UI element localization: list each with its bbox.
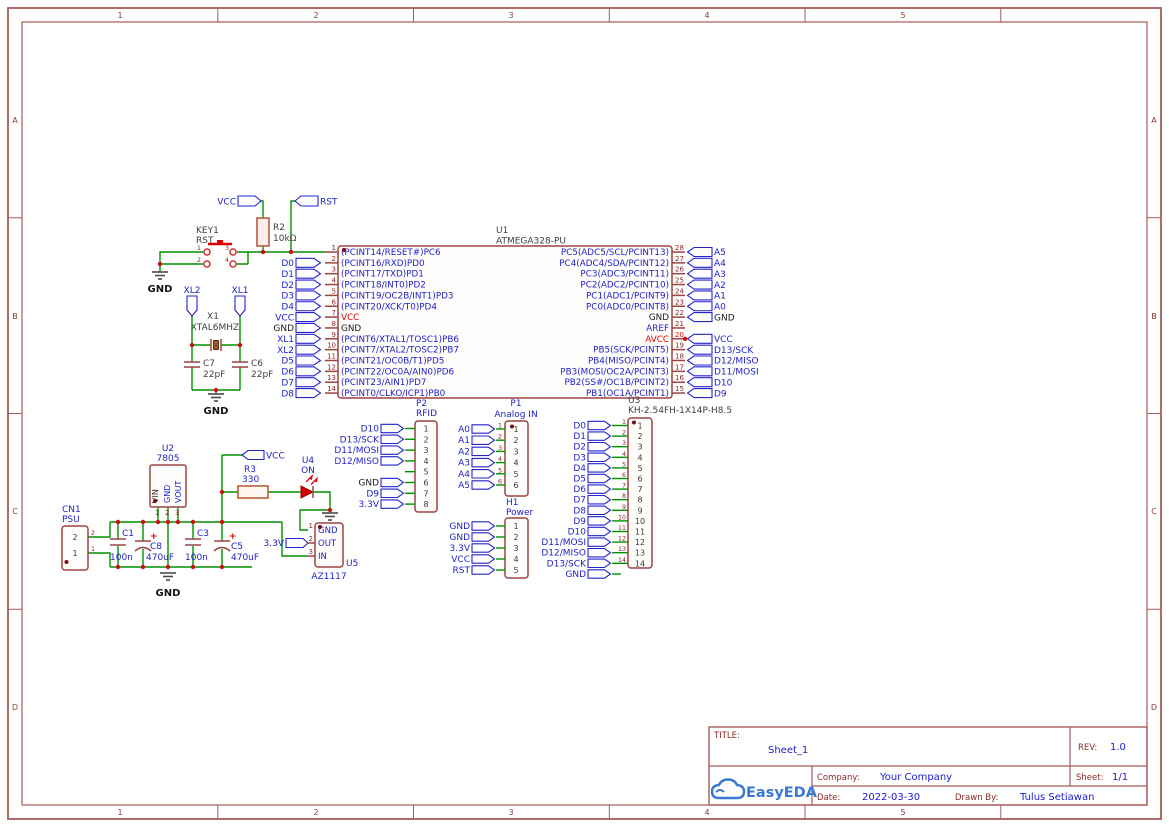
- pin-number: 2: [332, 255, 336, 263]
- net-flag[interactable]: D12/MISO: [541, 549, 610, 559]
- pin-number: 1: [155, 509, 159, 517]
- net-label: A0: [714, 302, 726, 312]
- net-flag[interactable]: RST: [453, 566, 495, 576]
- frame-col-label: 1: [117, 808, 122, 817]
- pin-number: 4: [332, 277, 337, 285]
- net-label: RST: [453, 566, 471, 576]
- pin-name: PC5(ADC5/SCL/PCINT13): [561, 248, 669, 258]
- pin-number: 3: [498, 445, 502, 452]
- pin-name: VCC: [341, 313, 359, 323]
- net-label: VCC: [451, 555, 470, 565]
- net-label: VCC: [714, 335, 733, 345]
- pin-name: (PCINT23/AIN1)PD7: [341, 378, 426, 388]
- net-flag[interactable]: D1: [281, 269, 320, 280]
- pin-number: 2: [197, 257, 201, 264]
- net-label: D6: [573, 485, 586, 495]
- value: 10kΩ: [273, 234, 297, 244]
- value: 470uF: [231, 553, 259, 563]
- crystal-body: [214, 341, 219, 350]
- pin-number: 19: [675, 342, 684, 350]
- company-value[interactable]: Your Company: [879, 772, 952, 783]
- component-u1[interactable]: U1 ATMEGA328-PU 1 (PCINT14/RESET#)PC6 2 …: [273, 226, 758, 399]
- pin-name: PB5(SCK/PCINT5): [593, 346, 669, 356]
- net-label: D12/MISO: [334, 457, 379, 467]
- pin-number: 20: [675, 331, 684, 339]
- net-label: D5: [281, 357, 294, 367]
- pin-number: 2: [91, 530, 95, 537]
- pin-name: (PCINT20/XCK/T0)PD4: [341, 302, 437, 312]
- refdes: C3: [197, 529, 209, 539]
- net-flag[interactable]: D11/MOSI: [334, 446, 403, 456]
- net-label: RST: [320, 198, 338, 208]
- pin-name: 2: [513, 436, 518, 445]
- net-label: A4: [714, 259, 726, 269]
- value: 22pF: [251, 370, 273, 380]
- net-flag-xl1[interactable]: XL1: [232, 286, 249, 316]
- value: Power: [506, 508, 534, 518]
- pin-number: 15: [675, 385, 684, 393]
- pin1-indicator: [153, 499, 157, 503]
- net-label: D7: [281, 378, 294, 388]
- pin-name: OUT: [318, 539, 337, 549]
- pin-number: 18: [675, 353, 684, 361]
- gnd-label: GND: [148, 284, 173, 295]
- net-flag[interactable]: D11/MOSI: [541, 538, 610, 548]
- led-triangle: [301, 486, 313, 498]
- net-label: D13/SCK: [547, 559, 587, 569]
- title-block: TITLE: Sheet_1 REV: 1.0 EasyEDA Company:…: [709, 727, 1147, 805]
- value: Analog IN: [494, 410, 537, 420]
- net-label: D10: [568, 528, 587, 538]
- refdes: CN1: [62, 505, 81, 515]
- net-label: D1: [281, 270, 294, 280]
- net-label: VCC: [217, 198, 236, 208]
- pin-name: 14: [635, 559, 645, 568]
- pin-name: AVCC: [645, 335, 669, 345]
- pin-name: 1: [637, 422, 642, 431]
- net-flag[interactable]: A1: [688, 291, 726, 302]
- net-flag[interactable]: XL1: [277, 334, 320, 345]
- frame-col-label: 1: [117, 11, 122, 20]
- led-rays: [306, 476, 317, 485]
- pin-number: 13: [327, 374, 336, 382]
- net-flag[interactable]: XL2: [277, 345, 320, 356]
- pin-number: 7: [622, 483, 626, 490]
- net-label: D9: [714, 389, 727, 399]
- frame-col-label: 3: [508, 808, 513, 817]
- date-value[interactable]: 2022-03-30: [862, 792, 920, 803]
- frame-col-label: 4: [704, 808, 709, 817]
- pin-name: 8: [423, 500, 428, 509]
- net-flag[interactable]: A1: [458, 436, 494, 446]
- pin-number: 22: [675, 309, 684, 317]
- pin-number: 9: [622, 504, 626, 511]
- pin1-indicator: [342, 248, 346, 252]
- frame-row-label: A: [12, 116, 18, 125]
- pin-number: 3: [309, 548, 313, 556]
- pin-number: 1: [197, 245, 201, 252]
- net-flag[interactable]: A3: [458, 458, 494, 468]
- frame-row-label: D: [12, 703, 18, 712]
- net-flag[interactable]: D10: [361, 424, 404, 434]
- net-flag[interactable]: D7: [573, 496, 610, 506]
- net-flag[interactable]: A0: [458, 425, 494, 435]
- net-flag[interactable]: D3: [573, 453, 610, 463]
- pin-name: 6: [423, 479, 428, 488]
- net-label: D7: [573, 496, 586, 506]
- net-flag[interactable]: D10: [568, 527, 611, 537]
- pin-name: GND: [649, 313, 669, 323]
- component-c7[interactable]: C7 22pF: [184, 359, 225, 380]
- pin-name: 6: [513, 481, 518, 490]
- component-h1[interactable]: H1 Power 1 GND 2 GND 3 3.3V 4: [449, 498, 533, 578]
- pin-name: (PCINT0/CLKO/ICP1)PB0: [341, 389, 446, 399]
- pin-name: PB3(MOSI/OC2A/PCINT3): [560, 367, 669, 377]
- net-label: D6: [281, 368, 294, 378]
- gnd-symbol-xtal[interactable]: GND: [204, 394, 229, 417]
- logo-text: EasyEDA: [746, 785, 818, 801]
- net-flag[interactable]: A4: [458, 470, 494, 480]
- net-label: VCC: [275, 313, 294, 323]
- pin-number: 4: [622, 451, 626, 458]
- pin-number: 2: [622, 430, 626, 437]
- pin-name: 1: [513, 425, 518, 434]
- value: 330: [242, 475, 259, 485]
- pin-number: 4: [498, 456, 502, 463]
- component-r3[interactable]: R3 330: [238, 465, 268, 498]
- net-flag[interactable]: D9: [688, 389, 727, 400]
- gnd-symbol-key1[interactable]: GND: [148, 272, 173, 295]
- net-label: GND: [714, 313, 735, 323]
- net-label: D4: [281, 302, 294, 312]
- net-label: D0: [281, 259, 294, 269]
- pin-name: (PCINT16/RXD)PD0: [341, 259, 425, 269]
- net-flag[interactable]: D5: [573, 474, 610, 484]
- net-flag-u3-gnd[interactable]: GND: [565, 570, 621, 580]
- pin-number: 9: [332, 331, 336, 339]
- refdes: C8: [150, 542, 162, 552]
- net-flag[interactable]: D0: [281, 258, 320, 269]
- net-label: D3: [573, 453, 586, 463]
- gnd-symbol-psu[interactable]: GND: [156, 573, 181, 599]
- net-flag[interactable]: D0: [573, 421, 610, 431]
- net-label: GND: [449, 533, 470, 543]
- component-u3[interactable]: U3 KH-2.54FH-1X14P-H8.5 1 1 D0 2 2 D1 3 …: [541, 396, 732, 580]
- frame-col-label: 5: [900, 11, 905, 20]
- component-c6[interactable]: C6 22pF: [232, 359, 273, 380]
- value: ATMEGA328-PU: [496, 237, 566, 247]
- pin-number: 21: [675, 320, 684, 328]
- net-flag[interactable]: D12/MISO: [334, 457, 403, 467]
- net-flag[interactable]: 3.3V: [359, 500, 404, 510]
- easyeda-logo: EasyEDA: [712, 780, 818, 802]
- net-label: A5: [714, 248, 726, 258]
- pin-number: 2: [309, 535, 313, 543]
- pin-number: 3: [622, 440, 626, 447]
- pin-name: 4: [423, 457, 428, 466]
- value: XTAL6MHZ: [191, 323, 239, 333]
- pin-number: 16: [675, 374, 684, 382]
- pin-name: (PCINT6/XTAL1/TOSC1)PB6: [341, 335, 459, 345]
- net-label: D10: [361, 425, 380, 435]
- net-flag[interactable]: 3.3V: [450, 544, 495, 554]
- refdes: R2: [273, 223, 285, 233]
- net-flag[interactable]: VCC: [451, 555, 494, 565]
- refdes: KEY1: [196, 226, 219, 236]
- net-flag[interactable]: D12/MISO: [688, 356, 759, 367]
- net-label: D10: [714, 378, 733, 388]
- net-flag[interactable]: D9: [573, 517, 610, 527]
- pin-name: (PCINT22/OC0A/AIN0)PD6: [341, 367, 455, 377]
- pin-number: 25: [675, 277, 684, 285]
- pin-number: 3: [175, 509, 179, 517]
- drawn-by-label: Drawn By:: [955, 793, 998, 803]
- pin-name: PC2(ADC2/PCINT10): [580, 281, 669, 291]
- frame-row-label: B: [1151, 312, 1157, 321]
- net-flag[interactable]: A4: [688, 258, 727, 269]
- pin-name: 3: [423, 446, 428, 455]
- pin-number: 1: [498, 423, 502, 430]
- net-flag[interactable]: D10: [688, 378, 733, 389]
- u3-pin-row[interactable]: 10 10 D9: [573, 514, 645, 527]
- net-label: D11/MOSI: [541, 538, 586, 548]
- pin1-indicator: [318, 525, 322, 529]
- net-flag[interactable]: D6: [281, 367, 320, 378]
- pin-number: 6: [498, 479, 502, 486]
- net-flag[interactable]: VCC: [688, 334, 733, 345]
- net-flag[interactable]: D13/SCK: [688, 345, 755, 356]
- value: RFID: [416, 409, 437, 419]
- pin-name: 2: [637, 432, 642, 441]
- net-label: GND: [565, 570, 586, 580]
- refdes: P1: [510, 399, 521, 409]
- pin-name: (PCINT18/INT0)PD2: [341, 281, 426, 291]
- frame-row-label: B: [12, 312, 18, 321]
- net-flag-3v3[interactable]: 3.3V: [264, 539, 308, 550]
- value: 7805: [157, 454, 180, 464]
- pin-name: 7: [637, 485, 642, 494]
- pin-number: 12: [618, 536, 626, 543]
- net-label: 3.3V: [359, 500, 380, 510]
- pin-name: 11: [635, 528, 645, 537]
- net-flag[interactable]: D3: [281, 291, 320, 302]
- net-flag[interactable]: D11/MOSI: [688, 367, 759, 378]
- pin-name: 9: [637, 506, 642, 515]
- junction-dot: [683, 337, 687, 341]
- pin-number: 23: [675, 298, 684, 306]
- pin-number: 1: [622, 419, 626, 426]
- net-label: D2: [573, 443, 586, 453]
- pin-name: 8: [637, 496, 642, 505]
- net-label: GND: [449, 522, 470, 532]
- pin-number: 13: [618, 546, 626, 553]
- net-label: D12/MISO: [714, 357, 759, 367]
- frame-col-label: 3: [508, 11, 513, 20]
- net-label: D4: [573, 464, 586, 474]
- net-flag[interactable]: D4: [573, 464, 610, 474]
- refdes: C6: [251, 359, 263, 369]
- net-flag[interactable]: GND: [449, 533, 494, 543]
- rev-value[interactable]: 1.0: [1110, 742, 1126, 753]
- pin-number: 24: [675, 287, 684, 295]
- net-label: GND: [273, 324, 294, 334]
- net-label: A3: [458, 459, 470, 469]
- net-flag[interactable]: D4: [281, 302, 320, 313]
- refdes: C5: [231, 542, 243, 552]
- pin-name: (PCINT19/OC2B/INT1)PD3: [341, 291, 454, 301]
- net-flag[interactable]: VCC: [275, 313, 320, 324]
- net-label: D13/SCK: [340, 435, 380, 445]
- cloud-icon: [712, 780, 744, 799]
- component-u5[interactable]: GND OUT IN 1 2 3 U5 AZ1117: [308, 522, 358, 582]
- net-label: 3.3V: [450, 544, 471, 554]
- pin-name: 13: [635, 549, 645, 558]
- net-flag[interactable]: A2: [688, 280, 726, 291]
- net-flag[interactable]: D13/SCK: [340, 435, 404, 445]
- net-flag[interactable]: D8: [573, 506, 610, 516]
- pin-number: 7: [332, 309, 336, 317]
- pin-number: 2: [498, 434, 502, 441]
- net-label: A4: [458, 470, 470, 480]
- pin-name: 2: [72, 533, 77, 542]
- frame-row-label: C: [12, 507, 18, 516]
- net-label: VCC: [266, 452, 285, 462]
- pin-number: 12: [327, 363, 336, 371]
- pin-name: 2: [423, 435, 428, 444]
- date-label: Date:: [817, 793, 840, 803]
- net-flag[interactable]: D8: [281, 389, 320, 400]
- net-flag[interactable]: A0: [688, 302, 727, 313]
- net-flag[interactable]: D13/SCK: [547, 559, 611, 569]
- value: KH-2.54FH-1X14P-H8.5: [628, 406, 732, 416]
- net-label: D9: [573, 517, 586, 527]
- pin-number: 26: [675, 266, 684, 274]
- value: 100n: [110, 553, 133, 563]
- frame-row-label: C: [1151, 507, 1157, 516]
- pin-name: (PCINT14/RESET#)PC6: [341, 248, 441, 258]
- net-label: GND: [358, 479, 379, 489]
- pin-number: 3: [225, 245, 229, 252]
- refdes: U3: [628, 396, 640, 406]
- component-c1[interactable]: C1 100n: [110, 529, 134, 563]
- net-label: XL2: [184, 286, 201, 296]
- pin-name: 1: [72, 549, 77, 558]
- net-flag[interactable]: D9: [366, 489, 403, 499]
- pin-name: GND: [163, 485, 172, 503]
- frame-row-label: D: [1151, 703, 1157, 712]
- net-flag[interactable]: D5: [281, 356, 320, 367]
- component-p2[interactable]: P2 RFID 1 D10 2 D13/SCK 3 D11/MOSI: [334, 399, 437, 512]
- net-flag-vcc-top[interactable]: VCC: [217, 196, 261, 208]
- net-flag[interactable]: GND: [449, 522, 494, 532]
- refdes: U5: [346, 559, 358, 569]
- net-label: D11/MOSI: [334, 446, 379, 456]
- pin-name: GND: [341, 324, 361, 334]
- frame-col-label: 4: [704, 11, 709, 20]
- pin-number: 8: [622, 493, 626, 500]
- net-flag[interactable]: D1: [573, 432, 610, 442]
- net-flag[interactable]: A3: [688, 269, 726, 280]
- pin-number: 10: [327, 342, 336, 350]
- pin-name: 3: [513, 544, 518, 553]
- sheet-value[interactable]: 1/1: [1112, 772, 1128, 783]
- pin-name: PB2(SS#/OC1B/PCINT2): [564, 378, 669, 388]
- value: 22pF: [203, 370, 225, 380]
- pin-number: 5: [622, 461, 626, 468]
- net-label: D1: [573, 432, 586, 442]
- net-flag[interactable]: A5: [688, 248, 726, 259]
- net-flag-rst-top[interactable]: RST: [295, 196, 338, 208]
- pin-number: 8: [332, 320, 336, 328]
- pin-number: 17: [675, 363, 684, 371]
- net-label: XL2: [277, 346, 294, 356]
- component-u2[interactable]: U2 7805 VIN GND VOUT 1 2 3: [150, 444, 186, 517]
- net-flag[interactable]: GND: [358, 478, 403, 488]
- net-flag[interactable]: D2: [573, 443, 610, 453]
- net-label: D13/SCK: [714, 346, 754, 356]
- component-p1[interactable]: P1 Analog IN 1 1 A0 2 2 A1 3 3 A2: [458, 399, 538, 496]
- pin-name: 5: [513, 470, 518, 479]
- sheet-title[interactable]: Sheet_1: [768, 745, 808, 756]
- pin-name: (PCINT7/XTAL2/TOSC2)PB7: [341, 346, 459, 356]
- value: PSU: [62, 515, 80, 525]
- net-flag[interactable]: D6: [573, 485, 610, 495]
- refdes: R3: [244, 465, 256, 475]
- component-c5[interactable]: + C5 470uF: [214, 532, 259, 563]
- pin-number: 27: [675, 255, 684, 263]
- net-label: XL1: [232, 286, 249, 296]
- net-flag[interactable]: A5: [458, 481, 494, 491]
- net-label: D5: [573, 475, 586, 485]
- pin-number: 14: [618, 557, 626, 564]
- pin-number: 10: [618, 514, 626, 521]
- refdes: P2: [416, 399, 427, 409]
- pin-name: 7: [423, 489, 428, 498]
- pin-number: 14: [327, 385, 336, 393]
- net-flag[interactable]: D7: [281, 378, 320, 389]
- net-label: D9: [366, 489, 379, 499]
- pin-number: 5: [332, 287, 336, 295]
- pin-number: 5: [498, 467, 502, 474]
- refdes: U2: [162, 444, 174, 454]
- button-actuator: [217, 240, 223, 244]
- frame-row-label: A: [1151, 116, 1157, 125]
- drawn-by-value[interactable]: Tulus Setiawan: [1019, 792, 1094, 803]
- net-flag[interactable]: GND: [688, 313, 735, 324]
- pin-name: AREF: [646, 324, 669, 334]
- pin-name: (PCINT17/TXD)PD1: [341, 270, 424, 280]
- net-label: A2: [714, 281, 726, 291]
- gnd-label: GND: [204, 406, 229, 417]
- pin-name: 5: [513, 566, 518, 575]
- pin-number: 1: [309, 522, 313, 530]
- net-flag-vcc-mid[interactable]: VCC: [242, 451, 285, 462]
- pin1-indicator: [632, 421, 636, 425]
- component-c3[interactable]: C3 100n: [185, 529, 209, 563]
- net-flag[interactable]: A2: [458, 447, 494, 457]
- net-label: D2: [281, 281, 294, 291]
- pin-name: (PCINT21/OC0B/T1)PD5: [341, 357, 444, 367]
- net-flag[interactable]: GND: [273, 323, 320, 334]
- component-key1[interactable]: KEY1 RST 1 2 3 4: [196, 226, 236, 267]
- gnd-label: GND: [156, 588, 181, 599]
- frame-col-label: 2: [313, 11, 318, 20]
- net-flag-xl2[interactable]: XL2: [184, 286, 201, 316]
- net-label: D12/MISO: [541, 549, 586, 559]
- pin-name: 6: [637, 475, 642, 484]
- net-flag[interactable]: D2: [281, 280, 320, 291]
- net-label: 3.3V: [264, 539, 285, 549]
